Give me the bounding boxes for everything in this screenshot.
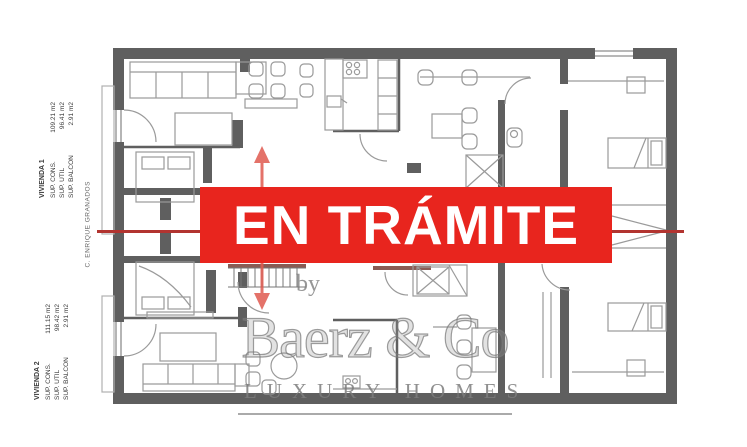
unit-1-info: VIVIENDA 1 SUP. CONS.109.21 m2 SUP. UTIL… [38,98,78,198]
coffee-table-lower [160,333,216,361]
dining-set-lower [246,352,297,394]
kitchen-upper [325,59,397,130]
kitchen-lower [333,376,397,389]
unit-area-row: SUP. BALCON2.91 m2 [67,102,76,198]
balconies [102,86,114,392]
sofa-lower [143,364,249,391]
stair-core-accents [228,264,431,270]
elevator-upper [466,155,503,188]
unit-2-info: VIVIENDA 2 SUP. CONS.111.15 m2 SUP. UTIL… [33,300,73,400]
unit-area-row: SUP. UTIL96.41 m2 [58,102,67,198]
unit-area-row: SUP. BALCON2.91 m2 [62,304,71,400]
floorplan-image: EN TRÁMITE by Baerz & Co LUXURY HOMES VI… [0,0,747,447]
unit-area-row: SUP. CONS.111.15 m2 [44,304,53,400]
status-banner-label: EN TRÁMITE [233,193,579,257]
bedroom-upper-right [568,77,666,168]
wc-upper [507,128,522,147]
wardrobe-mid-right [612,205,666,248]
unit-name: VIVIENDA 1 [38,98,48,198]
coffee-table-upper [175,113,232,145]
unit-area-row: SUP. UTIL98.42 m2 [53,304,62,400]
unit-area-row: SUP. CONS.109.21 m2 [49,102,58,198]
status-banner: EN TRÁMITE [200,187,612,263]
tables-lower [433,315,496,379]
street-label: C. ENRIQUE GRANADOS [85,193,95,268]
unit-name: VIVIENDA 2 [33,300,43,400]
dining-set-upper [245,62,313,108]
bed-lower-left [136,262,194,315]
